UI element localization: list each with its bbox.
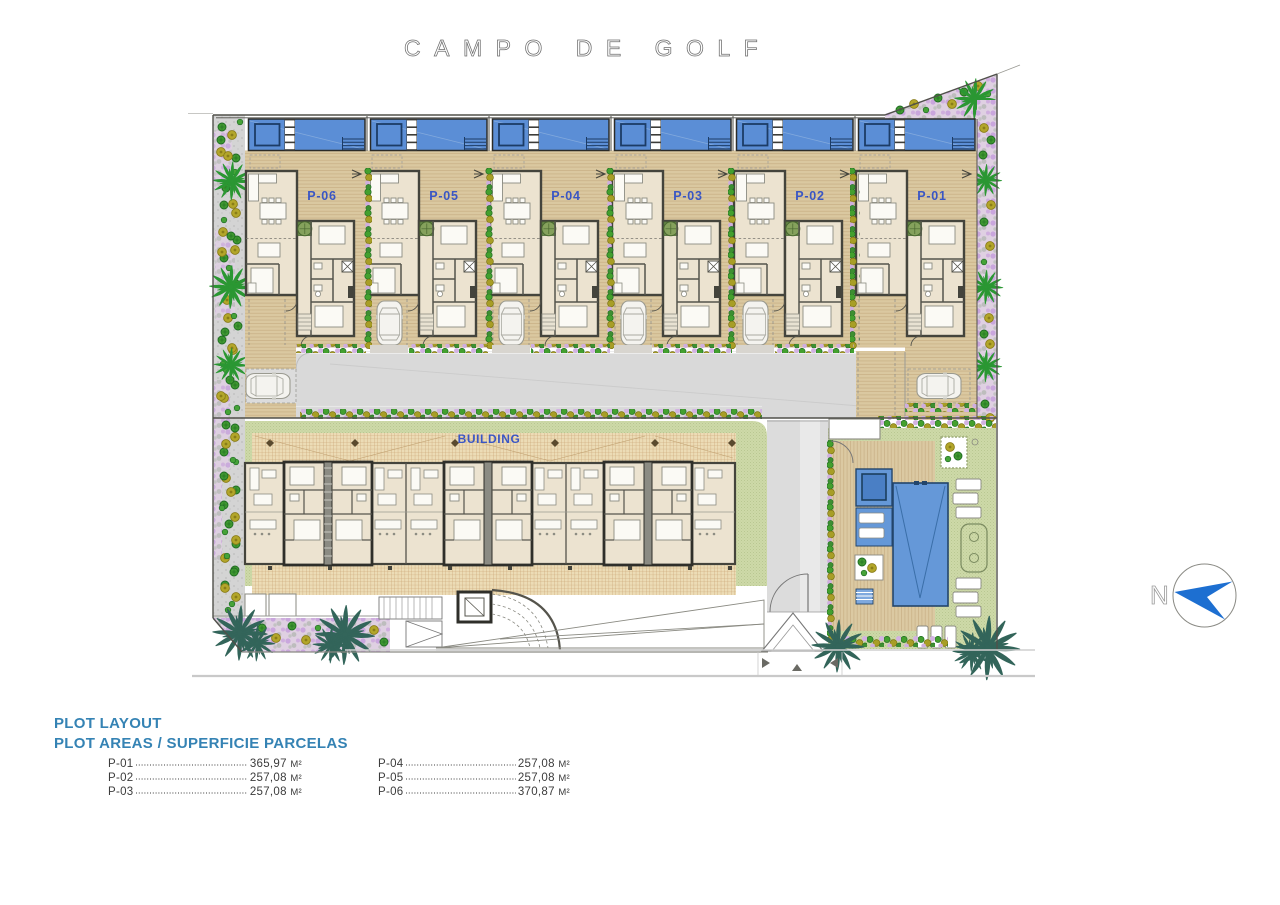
svg-text:P-02: P-02 xyxy=(795,189,825,203)
svg-text:P-02: P-02 xyxy=(108,772,134,784)
svg-text:P-05: P-05 xyxy=(378,772,404,784)
svg-text:P-06: P-06 xyxy=(378,786,404,798)
svg-text:365,97 M²: 365,97 M² xyxy=(250,758,302,770)
svg-text:BUILDING: BUILDING xyxy=(458,432,521,446)
svg-text:P-04: P-04 xyxy=(551,189,581,203)
svg-text:257,08 M²: 257,08 M² xyxy=(250,786,302,798)
svg-text:P-03: P-03 xyxy=(673,189,703,203)
svg-text:CAMPO DE GOLF: CAMPO DE GOLF xyxy=(404,35,771,61)
svg-text:P-01: P-01 xyxy=(917,189,947,203)
svg-text:P-01: P-01 xyxy=(108,758,134,770)
svg-text:P-04: P-04 xyxy=(378,758,404,770)
svg-text:257,08 M²: 257,08 M² xyxy=(250,772,302,784)
svg-text:N: N xyxy=(1150,580,1169,610)
svg-text:370,87 M²: 370,87 M² xyxy=(518,786,570,798)
svg-text:PLOT LAYOUT: PLOT LAYOUT xyxy=(54,715,162,732)
svg-text:P-06: P-06 xyxy=(307,189,337,203)
svg-text:PLOT AREAS / SUPERFICIE PARCEL: PLOT AREAS / SUPERFICIE PARCELAS xyxy=(54,735,348,752)
svg-text:P-03: P-03 xyxy=(108,786,134,798)
svg-text:257,08 M²: 257,08 M² xyxy=(518,772,570,784)
svg-text:257,08 M²: 257,08 M² xyxy=(518,758,570,770)
svg-text:P-05: P-05 xyxy=(429,189,459,203)
